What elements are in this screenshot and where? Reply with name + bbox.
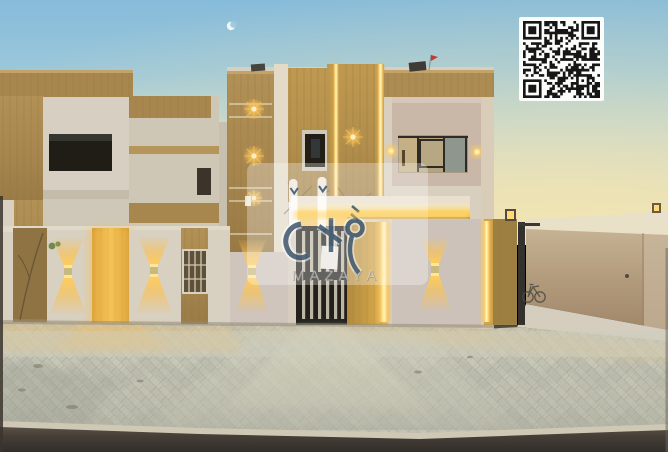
svg-text:MAZAYA: MAZAYA <box>292 268 381 285</box>
